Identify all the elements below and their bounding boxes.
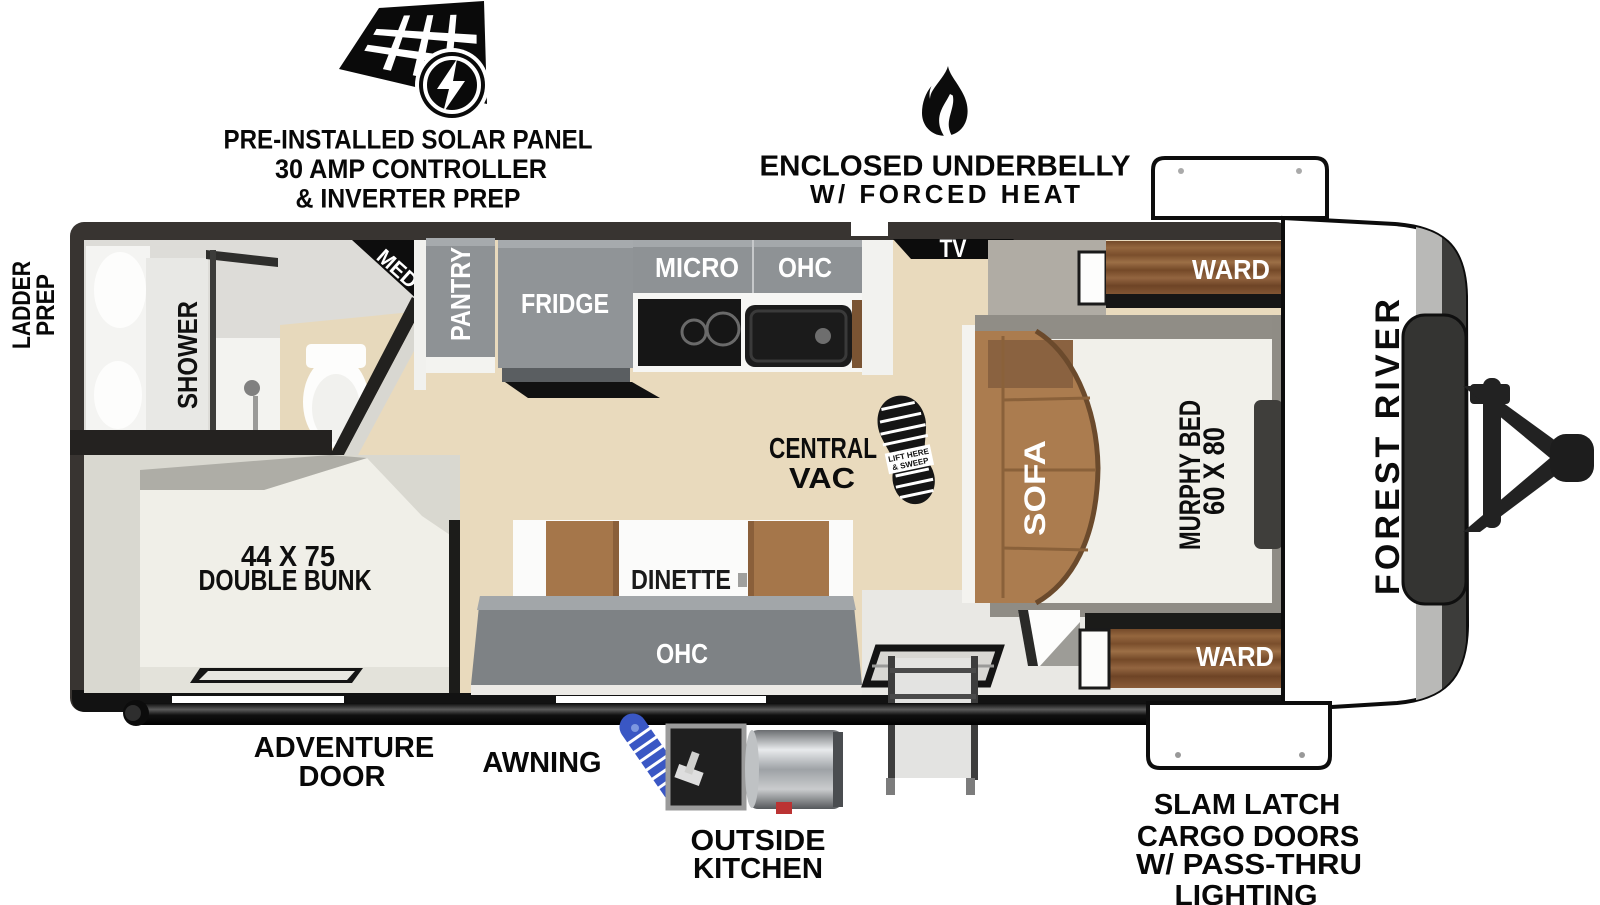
svg-text:& INVERTER PREP: & INVERTER PREP: [296, 184, 521, 214]
svg-text:FOREST RIVER: FOREST RIVER: [1369, 299, 1407, 595]
svg-text:VAC: VAC: [789, 463, 855, 495]
svg-text:TV: TV: [940, 235, 967, 263]
svg-text:ENCLOSED UNDERBELLY: ENCLOSED UNDERBELLY: [760, 151, 1131, 183]
svg-text:30 AMP CONTROLLER: 30 AMP CONTROLLER: [275, 154, 547, 184]
svg-text:MURPHY BED: MURPHY BED: [1174, 400, 1207, 550]
svg-text:WARD: WARD: [1196, 641, 1274, 672]
svg-text:MICRO: MICRO: [655, 252, 739, 283]
svg-text:DOOR: DOOR: [299, 761, 386, 793]
svg-text:KITCHEN: KITCHEN: [693, 853, 823, 885]
svg-text:PREP: PREP: [32, 274, 60, 336]
svg-text:ADVENTURE: ADVENTURE: [254, 732, 434, 764]
svg-text:OHC: OHC: [656, 638, 708, 669]
svg-text:W/ PASS-THRU: W/ PASS-THRU: [1136, 849, 1362, 881]
svg-text:AWNING: AWNING: [482, 747, 601, 779]
svg-text:DOUBLE BUNK: DOUBLE BUNK: [199, 565, 372, 597]
svg-text:SHOWER: SHOWER: [172, 301, 203, 409]
svg-text:CENTRAL: CENTRAL: [769, 433, 877, 465]
svg-text:OHC: OHC: [778, 252, 832, 283]
svg-text:SOFA: SOFA: [1019, 440, 1052, 536]
svg-text:LIGHTING: LIGHTING: [1175, 880, 1318, 905]
svg-text:WARD: WARD: [1192, 254, 1270, 285]
svg-text:SLAM LATCH: SLAM LATCH: [1154, 789, 1340, 821]
svg-text:PRE-INSTALLED SOLAR PANEL: PRE-INSTALLED SOLAR PANEL: [224, 125, 593, 155]
svg-text:FRIDGE: FRIDGE: [521, 288, 609, 319]
svg-text:PANTRY: PANTRY: [445, 247, 476, 341]
svg-text:DINETTE: DINETTE: [631, 564, 731, 595]
